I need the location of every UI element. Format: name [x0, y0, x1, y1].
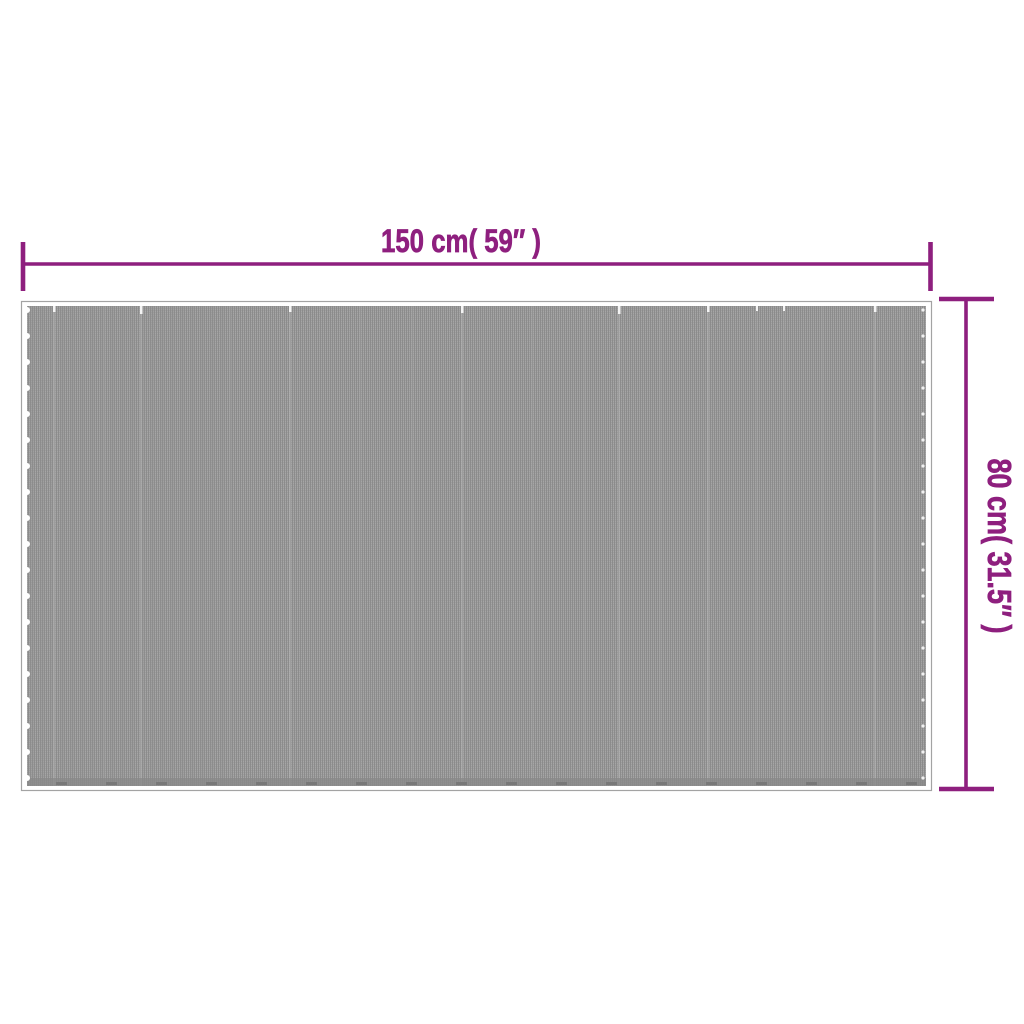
- svg-text:80 cm( 31.5″ ): 80 cm( 31.5″ ): [980, 459, 1017, 634]
- svg-text:150 cm( 59″ ): 150 cm( 59″ ): [381, 223, 541, 259]
